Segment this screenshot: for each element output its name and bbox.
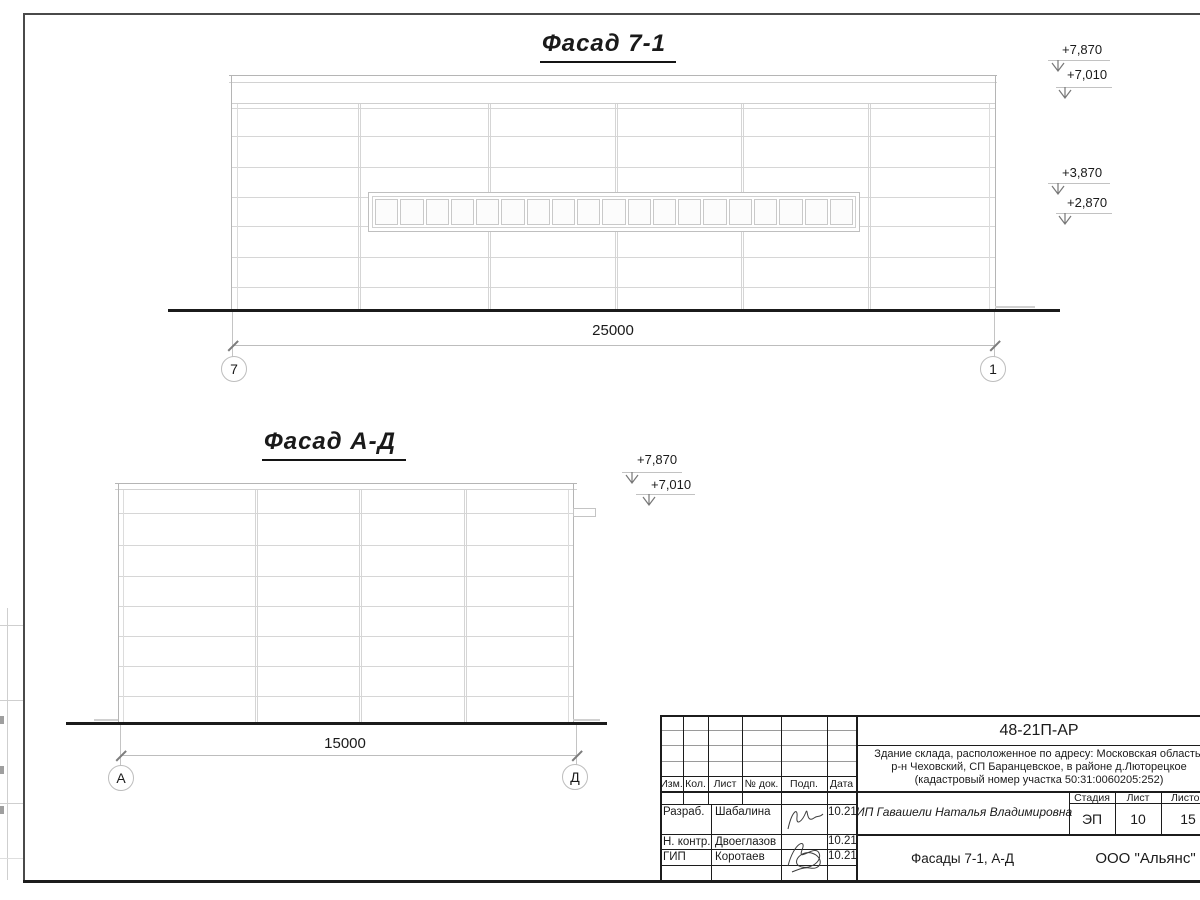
panel-joint bbox=[118, 545, 573, 546]
window-pane bbox=[426, 199, 449, 225]
column-line bbox=[358, 104, 361, 309]
panel-joint bbox=[118, 606, 573, 607]
signer-role: ГИП bbox=[663, 851, 686, 863]
column-line bbox=[868, 104, 871, 309]
titleblock-line bbox=[23, 880, 1200, 883]
sheet-value: 10 bbox=[1115, 811, 1161, 827]
window-strip bbox=[368, 192, 860, 232]
level-arrow-icon bbox=[1057, 213, 1073, 227]
titleblock-line bbox=[742, 715, 743, 804]
level-arrow-icon bbox=[624, 472, 640, 486]
signer-name: Шабалина bbox=[715, 806, 771, 818]
apron bbox=[94, 719, 118, 721]
level-mark-value: +7,010 bbox=[651, 477, 691, 492]
titleblock-line bbox=[781, 715, 782, 880]
panel-joint bbox=[232, 287, 995, 288]
building-edge-left-inner bbox=[123, 490, 124, 722]
window-pane bbox=[400, 199, 423, 225]
axis-label: Д bbox=[570, 769, 579, 785]
margin-table-line bbox=[7, 608, 8, 880]
level-arrow-icon bbox=[1050, 183, 1066, 197]
window-pane bbox=[805, 199, 828, 225]
col-data: Дата bbox=[827, 778, 856, 790]
stage-label: Стадия bbox=[1069, 792, 1115, 804]
panel-joint bbox=[118, 666, 573, 667]
level-arrow-icon bbox=[1050, 60, 1066, 74]
window-pane bbox=[754, 199, 777, 225]
frame-top-border bbox=[23, 13, 1200, 15]
axis-marker-a: А bbox=[108, 765, 134, 791]
fascia-bottom-line bbox=[232, 103, 995, 104]
margin-table-line bbox=[0, 700, 23, 701]
extension-line bbox=[232, 312, 233, 357]
margin-text-stub bbox=[0, 806, 4, 814]
col-ndok: № док. bbox=[742, 778, 781, 790]
margin-text-stub bbox=[0, 716, 4, 724]
dimension-line bbox=[232, 345, 995, 346]
axis-marker-d: Д bbox=[562, 764, 588, 790]
panel-joint bbox=[232, 108, 995, 109]
window-pane bbox=[678, 199, 701, 225]
ground-line bbox=[168, 309, 1060, 312]
window-pane bbox=[729, 199, 752, 225]
titleblock-line bbox=[856, 745, 1200, 746]
margin-table-line bbox=[0, 858, 23, 859]
margin-text-stub bbox=[0, 766, 4, 774]
window-pane bbox=[375, 199, 398, 225]
dimension-value: 15000 bbox=[295, 735, 395, 752]
building-edge-right-inner bbox=[989, 104, 990, 309]
frame-left-border bbox=[23, 13, 25, 882]
drawing-sheet: { "facade_7_1": { "title": "Фасад 7-1", … bbox=[0, 0, 1200, 900]
titleblock-line bbox=[660, 715, 662, 881]
window-pane bbox=[577, 199, 600, 225]
window-pane bbox=[628, 199, 651, 225]
apron bbox=[995, 306, 1035, 308]
col-izm: Изм. bbox=[660, 778, 683, 790]
level-mark-value: +3,870 bbox=[1062, 165, 1102, 180]
stage-value: ЭП bbox=[1069, 811, 1115, 827]
window-pane bbox=[653, 199, 676, 225]
level-mark-value: +7,010 bbox=[1067, 67, 1107, 82]
col-kol: Кол. bbox=[683, 778, 708, 790]
total-sheets-value: 15 bbox=[1161, 811, 1200, 827]
parapet-line bbox=[229, 82, 997, 83]
parapet-line bbox=[115, 483, 577, 484]
panel-joint bbox=[118, 576, 573, 577]
axis-label: 1 bbox=[989, 361, 997, 377]
column-line bbox=[464, 490, 467, 722]
project-description-line3: (кадастровый номер участка 50:31:0060205… bbox=[856, 774, 1200, 786]
titleblock-line bbox=[683, 715, 684, 804]
ground-line bbox=[66, 722, 607, 725]
panel-joint bbox=[118, 696, 573, 697]
axis-marker-7: 7 bbox=[221, 356, 247, 382]
signer-role: Разраб. bbox=[663, 806, 704, 818]
titleblock-line bbox=[708, 715, 709, 804]
extension-line bbox=[120, 725, 121, 767]
panel-joint bbox=[232, 257, 995, 258]
level-mark-value: +7,870 bbox=[1062, 42, 1102, 57]
column-line bbox=[359, 490, 362, 722]
project-description-line1: Здание склада, расположенное по адресу: … bbox=[856, 748, 1200, 760]
window-strip-panes bbox=[372, 196, 856, 228]
doc-number: 48-21П-АР bbox=[856, 722, 1200, 740]
building-edge-right bbox=[995, 75, 996, 309]
window-pane bbox=[602, 199, 625, 225]
signature-scribble bbox=[785, 805, 825, 833]
company-name: ООО "Альянс" bbox=[1069, 850, 1200, 867]
facade-a-d-title: Фасад А-Д bbox=[262, 428, 406, 461]
margin-table-line bbox=[0, 625, 23, 626]
col-list: Лист bbox=[708, 778, 742, 790]
panel-joint bbox=[232, 167, 995, 168]
titleblock-line bbox=[856, 834, 1200, 836]
signer-date: 10.21 bbox=[828, 850, 856, 862]
column-line bbox=[255, 490, 258, 722]
titleblock-line bbox=[711, 804, 712, 880]
project-description-line2: р-н Чеховский, СП Баранцевское, в районе… bbox=[856, 761, 1200, 773]
window-pane bbox=[779, 199, 802, 225]
sheet-label: Лист bbox=[1115, 792, 1161, 804]
building-edge-left-inner bbox=[237, 104, 238, 309]
axis-label: 7 bbox=[230, 361, 238, 377]
parapet-line bbox=[229, 75, 997, 76]
client-name: ИП Гавашели Наталья Владимировна bbox=[856, 805, 1069, 819]
signer-role: Н. контр. bbox=[663, 836, 710, 848]
building-edge-right bbox=[573, 483, 574, 722]
dimension-line bbox=[120, 755, 576, 756]
level-mark-value: +7,870 bbox=[637, 452, 677, 467]
gutter-outlet bbox=[573, 508, 596, 517]
level-arrow-icon bbox=[641, 494, 657, 508]
level-mark-value: +2,870 bbox=[1067, 195, 1107, 210]
col-podp: Подп. bbox=[781, 778, 827, 790]
margin-table-line bbox=[0, 803, 23, 804]
parapet-line bbox=[115, 489, 577, 490]
building-edge-left bbox=[231, 75, 232, 309]
window-pane bbox=[451, 199, 474, 225]
panel-joint bbox=[118, 636, 573, 637]
dimension-value: 25000 bbox=[563, 322, 663, 339]
signer-name: Двоеглазов bbox=[715, 836, 776, 848]
signer-date: 10.21 bbox=[828, 806, 856, 818]
signer-name: Коротаев bbox=[715, 851, 765, 863]
total-sheets-label: Листов bbox=[1161, 792, 1200, 804]
titleblock-line bbox=[660, 715, 1200, 717]
building-edge-left bbox=[118, 483, 119, 722]
level-arrow-icon bbox=[1057, 87, 1073, 101]
sheet-title: Фасады 7-1, А-Д bbox=[856, 851, 1069, 866]
apron bbox=[573, 719, 600, 721]
window-pane bbox=[703, 199, 726, 225]
signature-scribble bbox=[783, 834, 827, 878]
axis-marker-1: 1 bbox=[980, 356, 1006, 382]
window-pane bbox=[476, 199, 499, 225]
window-pane bbox=[830, 199, 853, 225]
panel-joint bbox=[232, 136, 995, 137]
building-edge-right-inner bbox=[568, 490, 569, 722]
window-pane bbox=[527, 199, 550, 225]
signer-date: 10.21 bbox=[828, 835, 856, 847]
axis-label: А bbox=[116, 770, 125, 786]
extension-line bbox=[576, 725, 577, 767]
extension-line bbox=[994, 312, 995, 357]
window-pane bbox=[501, 199, 524, 225]
panel-joint bbox=[118, 513, 573, 514]
facade-7-1-title: Фасад 7-1 bbox=[540, 30, 676, 63]
window-pane bbox=[552, 199, 575, 225]
